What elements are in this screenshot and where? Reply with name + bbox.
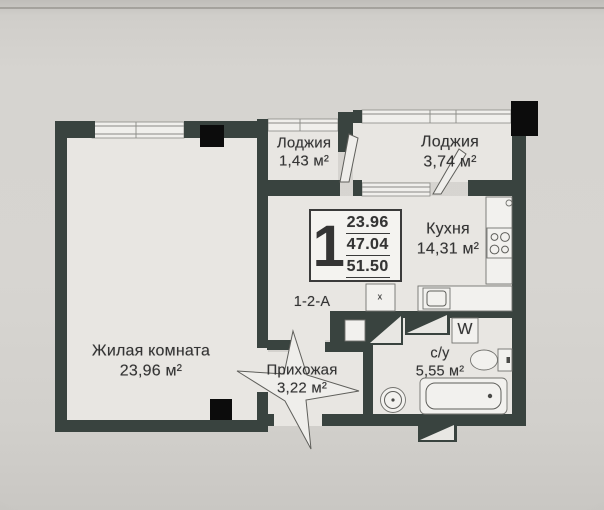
unit-info-badge: 1 23.96 47.04 51.50 <box>309 209 402 282</box>
room-area: 3,22 м² <box>266 380 337 398</box>
room-name: Кухня <box>417 219 479 239</box>
room-label-loggia-large: Лоджия 3,74 м² <box>421 132 479 171</box>
room-name: Лоджия <box>277 135 331 153</box>
room-area: 5,55 м² <box>416 363 464 381</box>
wall <box>55 420 268 432</box>
room-name: Лоджия <box>421 132 479 152</box>
room-area: 23,96 м² <box>92 361 210 381</box>
toilet-flush <box>507 357 511 363</box>
room-name: с/у <box>416 345 464 363</box>
wall <box>184 121 268 138</box>
column <box>210 399 232 420</box>
room-area: 3,74 м² <box>421 152 479 172</box>
wall <box>55 121 67 432</box>
kitchen-window-icon <box>362 183 430 196</box>
column <box>511 101 538 136</box>
room-label-hallway: Прихожая 3,22 м² <box>266 362 337 399</box>
wall <box>512 130 526 426</box>
toilet-icon <box>471 350 498 370</box>
room-name: Жилая комната <box>92 341 210 361</box>
niche-box <box>345 320 365 341</box>
room-label-kitchen: Кухня 14,31 м² <box>417 219 479 258</box>
column <box>200 125 224 147</box>
unit-rooms-count: 1 <box>311 216 347 274</box>
wall <box>268 414 274 426</box>
room-name: Прихожая <box>266 362 337 380</box>
room-area: 1,43 м² <box>277 153 331 171</box>
wall <box>257 119 268 348</box>
unit-area-total: 51.50 <box>346 257 390 278</box>
unit-area-living: 23.96 <box>346 213 390 234</box>
bathtub-drain <box>488 394 492 398</box>
vent-shaft-label: x <box>378 292 383 303</box>
room-label-bathroom: с/у 5,55 м² <box>416 345 464 380</box>
washing-machine-label: W <box>457 320 472 340</box>
wall <box>353 110 362 123</box>
loggia-small-glazing-icon <box>268 119 338 131</box>
wall <box>257 180 340 196</box>
wall <box>468 180 512 196</box>
room-label-loggia-small: Лоджия 1,43 м² <box>277 135 331 172</box>
room-area: 14,31 м² <box>417 239 479 259</box>
unit-code-label: 1-2-А <box>294 294 330 312</box>
living-room-window-icon <box>92 122 184 138</box>
socket-icon <box>506 200 512 206</box>
unit-area-usable: 47.04 <box>346 235 390 256</box>
floor-plan-drawing <box>0 0 604 510</box>
unit-areas: 23.96 47.04 51.50 <box>346 213 390 278</box>
round-sink-drain <box>391 398 394 401</box>
wall <box>353 180 362 196</box>
stove-icon <box>487 228 512 258</box>
room-label-living-room: Жилая комната 23,96 м² <box>92 341 210 380</box>
floor-plan-photo: 1 23.96 47.04 51.50 Лоджия 1,43 м² Лоджи… <box>0 0 604 510</box>
loggia-large-glazing-icon <box>362 110 511 123</box>
